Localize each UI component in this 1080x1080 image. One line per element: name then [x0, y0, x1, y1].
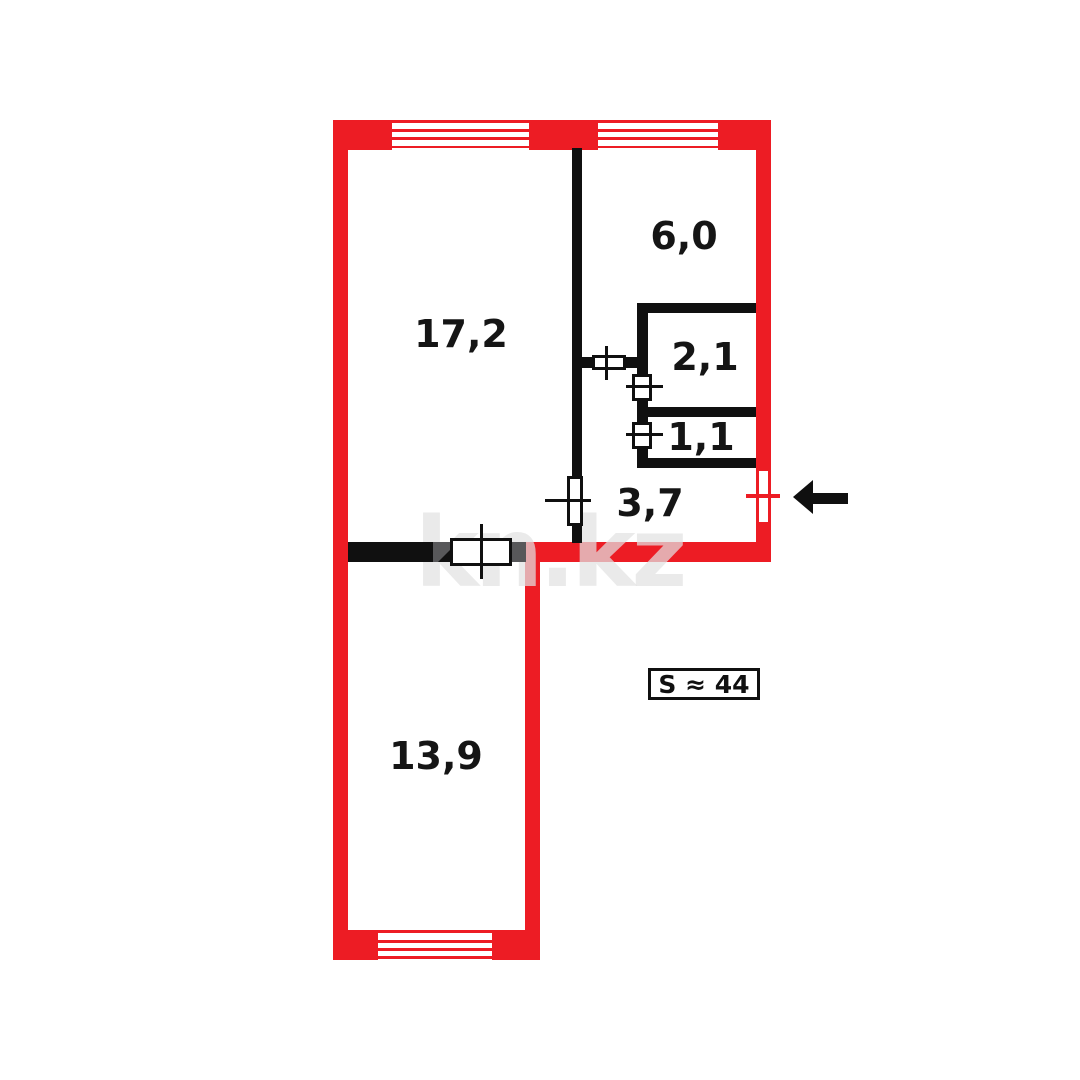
window-bedroom — [378, 930, 492, 960]
wall-right-upper — [756, 120, 771, 471]
door-jamb-right — [510, 542, 526, 562]
wall-toilet-bottom — [637, 458, 756, 468]
window-stripe — [378, 956, 492, 959]
window-stripe — [598, 120, 718, 123]
door-tick — [545, 499, 591, 502]
window-stripe — [598, 129, 718, 132]
door-tick — [626, 433, 663, 436]
window-kitchen — [598, 120, 718, 150]
window-stripe — [598, 146, 718, 149]
total-area-badge: S ≈ 44 — [648, 668, 760, 700]
wall-left — [333, 120, 348, 960]
wall-living-bedroom — [348, 542, 433, 562]
window-stripe — [378, 948, 492, 951]
room-label-kitchen: 6,0 — [650, 217, 717, 255]
door-tick — [480, 524, 483, 579]
wall-living-hall-upper — [572, 148, 582, 477]
room-label-bathroom: 2,1 — [671, 338, 738, 376]
room-label-living-room: 17,2 — [414, 315, 508, 353]
wall-bath-top — [637, 303, 756, 313]
window-living-room — [392, 120, 529, 150]
window-stripe — [392, 137, 529, 140]
room-label-hallway: 3,7 — [616, 484, 683, 522]
door-tick — [605, 346, 608, 380]
door-kitchen — [592, 355, 626, 370]
wall-bath-left-a — [637, 303, 648, 377]
room-label-bedroom: 13,9 — [389, 737, 483, 775]
window-stripe — [392, 146, 529, 149]
room-label-toilet: 1,1 — [667, 418, 734, 456]
entry-door-tick — [746, 494, 780, 498]
arrow-head — [793, 480, 813, 514]
window-stripe — [378, 940, 492, 943]
window-stripe — [392, 120, 529, 123]
floor-plan: kn.kz 17,2 6,0 2,1 1,1 3,7 13,9 S ≈ 44 — [0, 0, 1080, 1080]
window-stripe — [598, 137, 718, 140]
arrow-shaft — [811, 493, 848, 504]
wall-living-hall-lower — [572, 525, 582, 543]
window-stripe — [378, 930, 492, 933]
door-tick — [626, 385, 663, 388]
window-stripe — [392, 129, 529, 132]
